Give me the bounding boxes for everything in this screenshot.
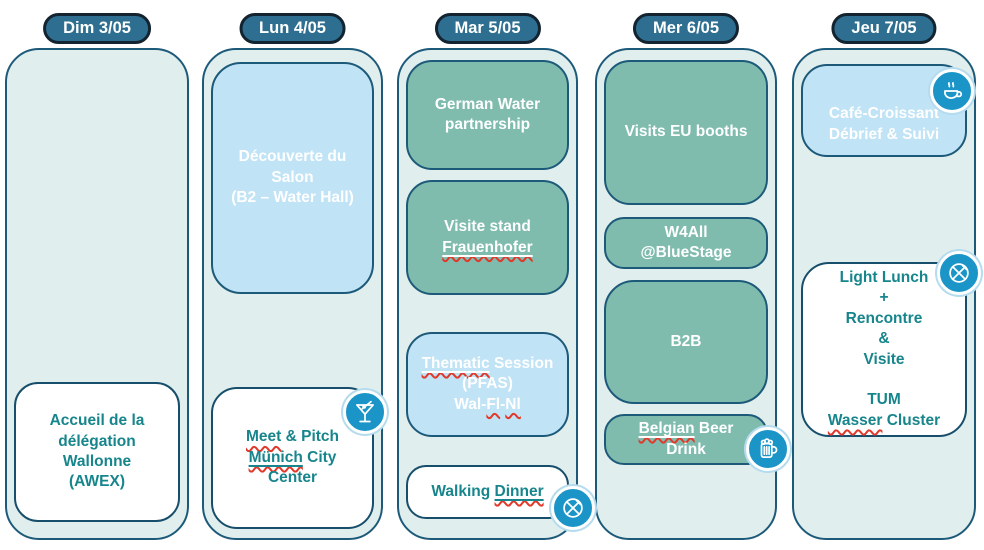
card-text-line: B2B bbox=[670, 332, 701, 352]
event-card-belgian-beer-drink[interactable]: Belgian BeerDrink bbox=[604, 414, 768, 465]
card-text-segment: & bbox=[878, 330, 889, 347]
card-text-segment: & Pitch bbox=[281, 428, 339, 445]
event-card-thematic-session-pfas[interactable]: Thematic Session(PFAS)Wal-Fl-Nl bbox=[406, 332, 569, 437]
card-text-segment: + bbox=[879, 289, 888, 306]
card-text-line: (B2 – Water Hall) bbox=[231, 188, 354, 208]
card-text-segment: Drink bbox=[666, 441, 706, 458]
card-text-segment: délégation bbox=[58, 433, 136, 450]
card-text-line: Visite bbox=[863, 350, 904, 370]
card-text-line: Débrief & Suivi bbox=[829, 125, 939, 145]
card-text-segment: Visits EU booths bbox=[625, 123, 748, 140]
event-card-w4all-bluestage[interactable]: W4All@BlueStage bbox=[604, 217, 768, 269]
card-text-segment: TUM bbox=[867, 391, 901, 408]
card-text-line: TUM bbox=[867, 390, 901, 410]
card-text-segment: (B2 – Water Hall) bbox=[231, 189, 354, 206]
card-text-line: (PFAS) bbox=[462, 374, 513, 394]
event-card-walking-dinner[interactable]: Walking Dinner bbox=[406, 465, 569, 519]
card-text-segment: Light Lunch bbox=[840, 269, 929, 286]
card-text-line: partnership bbox=[445, 115, 530, 135]
day-container: Accueil de ladélégationWallonne(AWEX) bbox=[5, 48, 189, 540]
card-text-segment: Beer bbox=[695, 420, 734, 437]
card-text-line: Wallonne bbox=[63, 452, 131, 472]
card-text-segment: Visite stand bbox=[444, 218, 531, 235]
card-text-line: German Water bbox=[435, 95, 540, 115]
card-text-segment: Débrief & Suivi bbox=[829, 126, 939, 143]
event-card-light-lunch-tum[interactable]: Light Lunch+Rencontre&Visite TUMWasser C… bbox=[801, 262, 967, 437]
card-text-segment: Salon bbox=[271, 169, 313, 186]
day-container: Visits EU booths W4All@BlueStage B2B Bel… bbox=[595, 48, 777, 540]
card-text-segment: Belgian bbox=[639, 420, 695, 437]
card-text-line: Meet & Pitch bbox=[246, 427, 339, 447]
event-card-decouverte-salon[interactable]: Découverte duSalon(B2 – Water Hall) bbox=[211, 62, 374, 294]
day-header-pill[interactable]: Mer 6/05 bbox=[633, 13, 739, 44]
card-text-segment: Wallonne bbox=[63, 453, 131, 470]
crossed-cutlery-icon bbox=[551, 486, 595, 530]
card-text-segment: Session bbox=[490, 355, 554, 372]
card-text-line: Wasser Cluster bbox=[828, 411, 940, 431]
day-column-dim-3-05: Dim 3/05 Accueil de ladélégationWallonne… bbox=[5, 0, 189, 550]
weekly-schedule: Dim 3/05 Accueil de ladélégationWallonne… bbox=[0, 0, 984, 550]
card-text-line: & bbox=[878, 329, 889, 349]
card-text-segment: Frauenhofer bbox=[442, 239, 532, 256]
card-text-line: Visite stand bbox=[444, 217, 531, 237]
card-text-line: Belgian Beer bbox=[639, 419, 734, 439]
beer-mug-icon bbox=[746, 427, 790, 471]
card-text-line: Walking Dinner bbox=[431, 482, 543, 502]
card-text-line: Wal-Fl-Nl bbox=[454, 395, 521, 415]
card-text-line: Center bbox=[268, 468, 317, 488]
day-header-pill[interactable]: Mar 5/05 bbox=[434, 13, 540, 44]
card-text-line: Café-Croissant bbox=[829, 104, 939, 124]
day-column-mer-6-05: Mer 6/05 Visits EU booths W4All@BlueStag… bbox=[595, 0, 777, 550]
card-text-line: Drink bbox=[666, 440, 706, 460]
day-header-pill[interactable]: Jeu 7/05 bbox=[831, 13, 936, 44]
card-text-line: Frauenhofer bbox=[442, 238, 532, 258]
card-text-line: Accueil de la bbox=[50, 411, 145, 431]
card-text-segment: German Water bbox=[435, 96, 540, 113]
card-text-line: Thematic Session bbox=[422, 354, 554, 374]
card-text-line: Light Lunch bbox=[840, 268, 929, 288]
event-card-accueil-delegation[interactable]: Accueil de ladélégationWallonne(AWEX) bbox=[14, 382, 180, 522]
event-card-visits-eu-booths[interactable]: Visits EU booths bbox=[604, 60, 768, 205]
event-card-visite-stand-frauenhofer[interactable]: Visite standFrauenhofer bbox=[406, 180, 569, 295]
card-text-segment: @BlueStage bbox=[641, 244, 732, 261]
day-header-pill[interactable]: Dim 3/05 bbox=[43, 13, 151, 44]
card-text-segment: Wasser bbox=[828, 412, 883, 429]
card-text-segment: Meet bbox=[246, 428, 281, 445]
day-column-mar-5-05: Mar 5/05 German Waterpartnership Visite … bbox=[397, 0, 578, 550]
card-text-line: délégation bbox=[58, 432, 136, 452]
card-text-line: (AWEX) bbox=[69, 472, 125, 492]
card-text-line: @BlueStage bbox=[641, 243, 732, 263]
card-text-line: Münich City bbox=[249, 448, 337, 468]
card-text-segment: Center bbox=[268, 469, 317, 486]
card-text-line bbox=[882, 370, 886, 390]
martini-glass-icon bbox=[343, 390, 387, 434]
day-column-jeu-7-05: Jeu 7/05 Café-CroissantDébrief & Suivi L… bbox=[792, 0, 976, 550]
coffee-cup-icon bbox=[930, 69, 974, 113]
card-text-segment: partnership bbox=[445, 116, 530, 133]
card-text-line: W4All bbox=[664, 223, 707, 243]
card-text-segment: (PFAS) bbox=[462, 375, 513, 392]
card-text-line: Rencontre bbox=[846, 309, 923, 329]
event-card-b2b[interactable]: B2B bbox=[604, 280, 768, 404]
crossed-cutlery-icon bbox=[937, 251, 981, 295]
card-text-line: Visits EU booths bbox=[625, 122, 748, 142]
card-text-line: Découverte du bbox=[239, 147, 347, 167]
card-text-segment: W4All bbox=[664, 224, 707, 241]
card-text-segment: Visite bbox=[863, 351, 904, 368]
card-text-segment: Münich bbox=[249, 449, 303, 466]
day-container: German Waterpartnership Visite standFrau… bbox=[397, 48, 578, 540]
day-container: Café-CroissantDébrief & Suivi Light Lunc… bbox=[792, 48, 976, 540]
card-text-segment: Walking bbox=[431, 483, 494, 500]
card-text-segment bbox=[882, 371, 886, 388]
card-text-line: + bbox=[879, 288, 888, 308]
card-text-segment: (AWEX) bbox=[69, 473, 125, 490]
card-text-segment: Café-Croissant bbox=[829, 105, 939, 122]
card-text-line: Salon bbox=[271, 168, 313, 188]
card-text-segment: Dinner bbox=[495, 483, 544, 500]
event-card-german-water-partnership[interactable]: German Waterpartnership bbox=[406, 60, 569, 170]
day-column-lun-4-05: Lun 4/05 Découverte duSalon(B2 – Water H… bbox=[202, 0, 383, 550]
day-header-pill[interactable]: Lun 4/05 bbox=[239, 13, 346, 44]
day-container: Découverte duSalon(B2 – Water Hall) Meet… bbox=[202, 48, 383, 540]
card-text-segment: Fl bbox=[486, 396, 500, 413]
card-text-segment: City bbox=[303, 449, 337, 466]
card-text-segment: Accueil de la bbox=[50, 412, 145, 429]
card-text-segment: Thematic bbox=[422, 355, 490, 372]
card-text-segment: Nl bbox=[505, 396, 521, 413]
card-text-segment: B2B bbox=[670, 333, 701, 350]
card-text-segment: Rencontre bbox=[846, 310, 923, 327]
card-text-segment: Découverte du bbox=[239, 148, 347, 165]
card-text-segment: Cluster bbox=[882, 412, 940, 429]
card-text-segment: Wal- bbox=[454, 396, 486, 413]
